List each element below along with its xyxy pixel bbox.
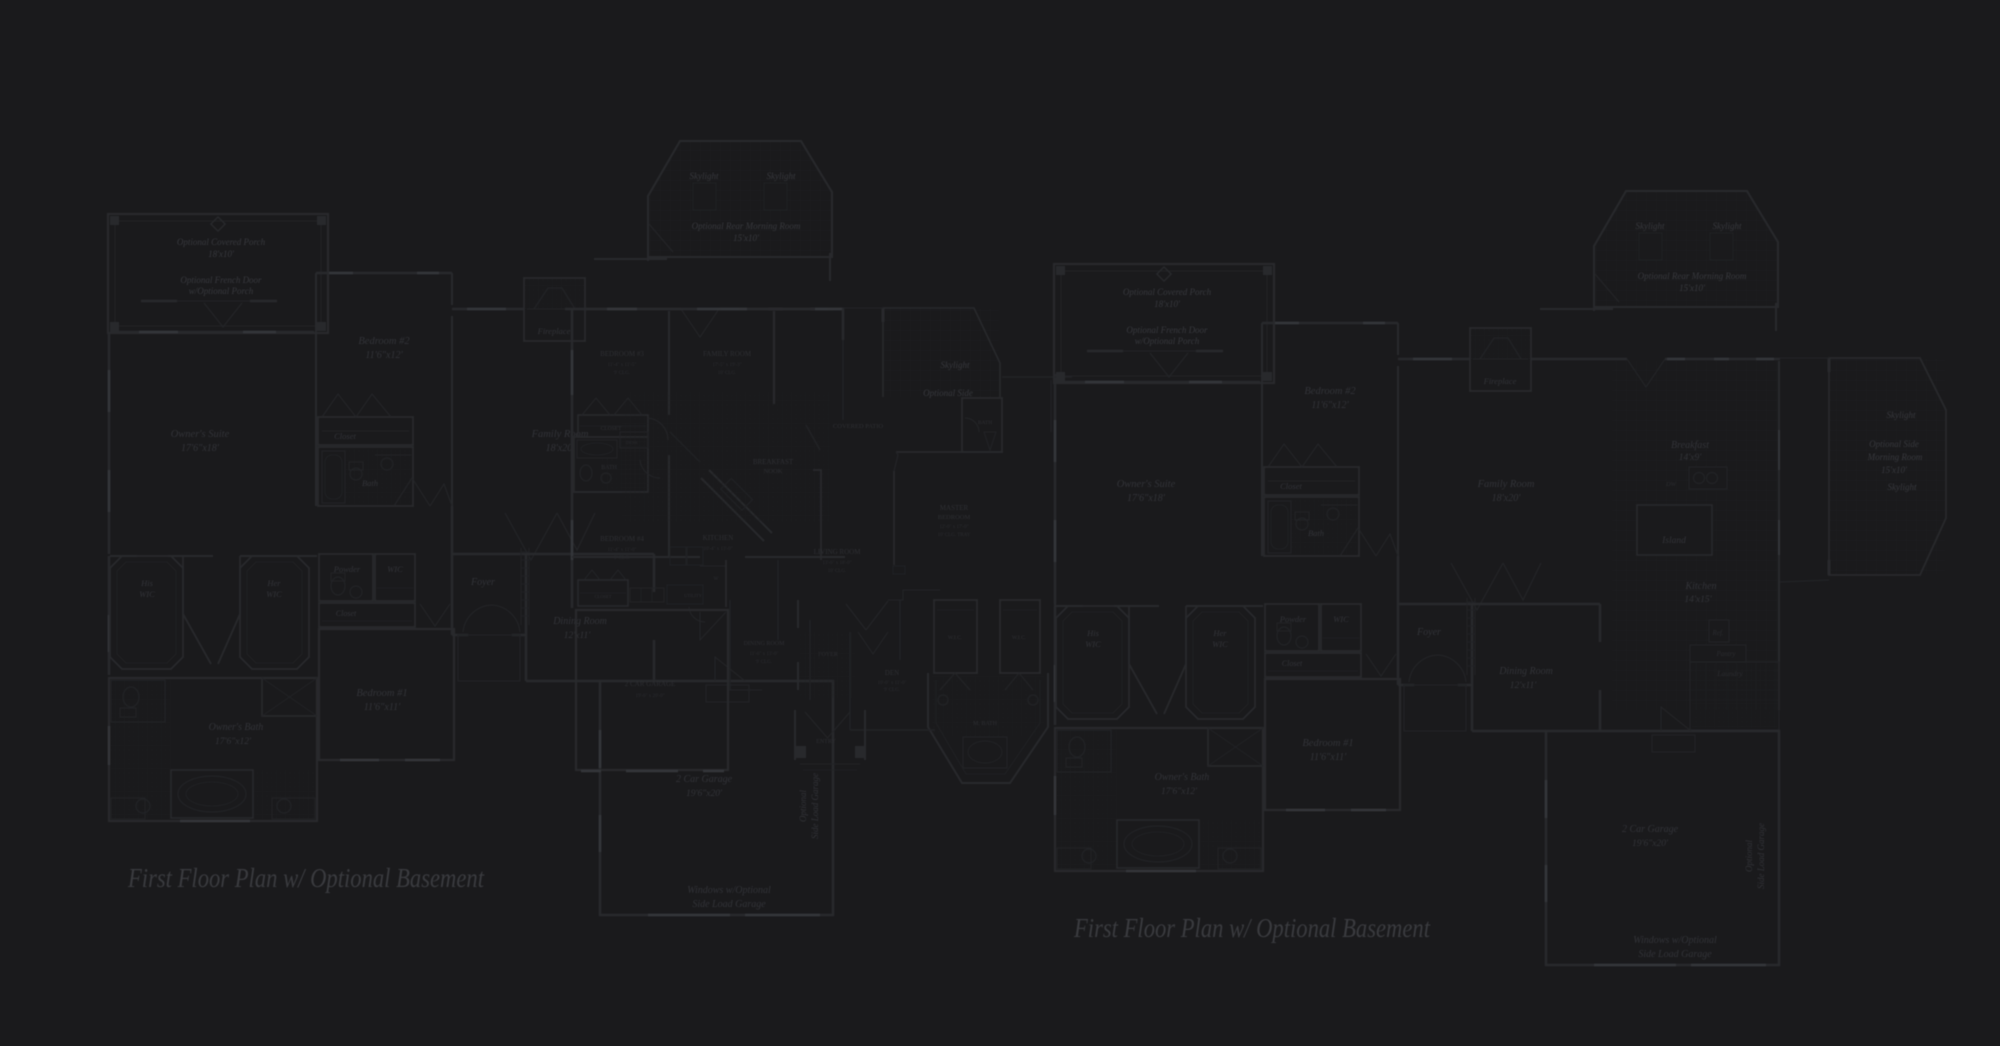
svg-text:Windows w/Optional: Windows w/Optional [1633,935,1717,946]
svg-text:10' CLG. TRAY: 10' CLG. TRAY [938,533,971,538]
svg-text:Side Load Garage: Side Load Garage [692,899,766,910]
svg-text:Optional French Door: Optional French Door [1126,325,1208,335]
svg-text:Closet: Closet [1280,481,1302,491]
svg-text:10' CLG.: 10' CLG. [828,569,846,574]
svg-text:WIC: WIC [1085,639,1101,649]
svg-text:11'6"x12': 11'6"x12' [365,350,403,361]
svg-text:BEDROOM #3: BEDROOM #3 [600,350,644,358]
svg-text:w/Optional Porch: w/Optional Porch [1135,336,1200,346]
svg-text:CLOSET: CLOSET [601,426,622,432]
svg-text:WIC: WIC [266,589,282,599]
svg-text:12'x11': 12'x11' [1510,681,1538,691]
svg-text:Skylight: Skylight [1887,410,1916,420]
svg-text:Bath: Bath [362,478,378,488]
svg-text:BEDROOM: BEDROOM [938,514,971,521]
svg-text:KITCHEN: KITCHEN [703,534,734,542]
svg-text:Her: Her [1212,628,1227,638]
svg-text:Laundry: Laundry [1716,669,1743,678]
svg-text:Owner's Bath: Owner's Bath [209,722,264,733]
svg-text:Side Load Garage: Side Load Garage [1638,949,1712,960]
svg-text:w/Optional Porch: w/Optional Porch [189,286,254,296]
svg-text:17'-5" x 19'-3": 17'-5" x 19'-3" [712,363,741,368]
svg-text:9' CLG.: 9' CLG. [884,688,900,693]
svg-text:11'-4" x 11'-0": 11'-4" x 11'-0" [608,548,637,553]
svg-text:NOOK: NOOK [764,468,783,475]
svg-text:Ref.: Ref. [1711,629,1723,637]
svg-text:Island: Island [1661,536,1686,546]
svg-text:Foyer: Foyer [470,577,495,588]
svg-text:15'x10': 15'x10' [733,233,760,243]
svg-text:Family Room: Family Room [1477,479,1535,490]
svg-text:W.I.C.: W.I.C. [948,635,963,641]
svg-text:12'x11': 12'x11' [564,631,592,641]
svg-text:Powder: Powder [1279,614,1307,624]
svg-text:W: W [714,577,719,582]
svg-text:Skylight: Skylight [941,360,970,370]
svg-text:Dining Room: Dining Room [552,616,607,627]
svg-text:11'6"x12': 11'6"x12' [1311,400,1349,411]
svg-text:19'-6" x 20'-0": 19'-6" x 20'-0" [635,694,664,699]
svg-text:9' CLG.: 9' CLG. [756,660,772,665]
svg-text:Foyer: Foyer [1416,627,1441,638]
svg-text:WIC: WIC [1333,614,1349,624]
svg-text:ENTRY: ENTRY [816,739,836,745]
svg-text:Fireplace: Fireplace [537,326,571,336]
svg-text:His: His [140,578,154,588]
svg-text:Optional: Optional [798,790,808,823]
svg-text:14'x15': 14'x15' [1684,595,1712,605]
svg-text:CLOSET: CLOSET [594,594,611,599]
svg-text:10' CLG.: 10' CLG. [718,371,736,376]
svg-text:Owner's Bath: Owner's Bath [1155,772,1210,783]
svg-text:First Floor Plan w/ Optional: First Floor Plan w/ Optional Basement [127,863,485,893]
svg-text:2 CAR GARAGE: 2 CAR GARAGE [625,680,676,688]
svg-text:2 Car Garage: 2 Car Garage [676,774,733,785]
svg-text:MASTER: MASTER [940,504,969,512]
svg-text:LIVING ROOM: LIVING ROOM [814,548,862,556]
svg-text:Fireplace: Fireplace [1483,376,1517,386]
svg-text:18'x10': 18'x10' [1154,299,1181,309]
svg-text:17'6"x12': 17'6"x12' [215,737,252,747]
svg-text:Optional Side: Optional Side [923,388,973,398]
svg-text:Breakfast: Breakfast [1671,440,1709,451]
svg-text:Closet: Closet [336,609,357,618]
svg-text:Owner's Suite: Owner's Suite [1117,479,1176,490]
svg-text:FAMILY ROOM: FAMILY ROOM [703,350,752,358]
svg-text:10'-4" x 13'-0": 10'-4" x 13'-0" [703,547,732,552]
svg-text:Pantry: Pantry [1715,650,1736,658]
svg-text:18'x10': 18'x10' [208,249,235,259]
svg-text:2 Car Garage: 2 Car Garage [1622,824,1679,835]
svg-text:15'x10': 15'x10' [1881,465,1908,475]
svg-text:DEN: DEN [885,669,899,677]
svg-text:Her: Her [266,578,281,588]
svg-text:19'6"x20': 19'6"x20' [1632,839,1669,849]
svg-text:Side Load Garage: Side Load Garage [1756,823,1766,889]
svg-text:18'x20': 18'x20' [1492,493,1522,504]
svg-text:Optional Rear Morning Room: Optional Rear Morning Room [692,221,801,231]
svg-text:14'x9': 14'x9' [1679,453,1702,463]
svg-text:W.I.C.: W.I.C. [1012,635,1027,641]
svg-text:10'-0" x 11'-0": 10'-0" x 11'-0" [877,681,906,686]
svg-text:Skylight: Skylight [1636,221,1665,231]
svg-text:DW: DW [1665,481,1677,488]
svg-text:Optional Side: Optional Side [1869,439,1919,449]
svg-text:11'6"x11': 11'6"x11' [364,702,401,713]
svg-text:Bedroom #1: Bedroom #1 [356,688,407,699]
svg-text:Skylight: Skylight [1888,482,1917,492]
svg-text:19'6"x20': 19'6"x20' [686,789,723,799]
svg-text:13'-6" x 18'-0": 13'-6" x 18'-0" [822,561,851,566]
svg-text:Family Room: Family Room [531,429,589,440]
svg-text:BATH: BATH [978,420,992,426]
svg-text:Bath: Bath [1308,528,1324,538]
svg-text:Owner's Suite: Owner's Suite [171,429,230,440]
svg-text:Bedroom #2: Bedroom #2 [1304,386,1356,397]
svg-text:DINING ROOM: DINING ROOM [744,641,785,647]
svg-text:Kitchen: Kitchen [1684,581,1716,592]
svg-text:Skylight: Skylight [767,171,796,181]
svg-text:First Floor Plan w/ Optional: First Floor Plan w/ Optional Basement [1073,913,1431,943]
svg-text:12'-0" x 17'-0": 12'-0" x 17'-0" [939,525,968,530]
svg-text:Optional Covered Porch: Optional Covered Porch [177,237,266,247]
svg-text:Side Load Garage: Side Load Garage [810,773,820,839]
svg-text:Optional French Door: Optional French Door [180,275,262,285]
svg-text:Optional: Optional [1744,840,1754,873]
svg-text:Powder: Powder [333,564,361,574]
svg-text:WIC: WIC [139,589,155,599]
svg-text:BREAKFAST: BREAKFAST [753,458,794,466]
svg-text:17'6"x18': 17'6"x18' [181,443,220,454]
svg-text:COVERED PATIO: COVERED PATIO [833,423,883,430]
svg-text:Skylight: Skylight [1713,221,1742,231]
svg-text:Windows w/Optional: Windows w/Optional [687,885,771,896]
svg-text:Optional Rear Morning Room: Optional Rear Morning Room [1638,271,1747,281]
svg-text:Bedroom #1: Bedroom #1 [1302,738,1353,749]
svg-text:M. BATH: M. BATH [973,721,998,727]
svg-text:11'6"x11': 11'6"x11' [1310,752,1347,763]
svg-text:Closet: Closet [334,431,356,441]
svg-text:Closet: Closet [1282,659,1303,668]
svg-text:15'x10': 15'x10' [1679,283,1706,293]
svg-text:11'-4" x 11'-5": 11'-4" x 11'-5" [608,363,637,368]
svg-text:BEDROOM #4: BEDROOM #4 [600,535,644,543]
svg-text:UTILITY: UTILITY [684,593,702,598]
svg-text:BATH: BATH [601,465,617,471]
svg-text:WIC: WIC [1212,639,1228,649]
svg-text:Skylight: Skylight [690,171,719,181]
svg-text:17'6"x12': 17'6"x12' [1161,787,1198,797]
svg-text:Morning Room: Morning Room [1867,452,1923,462]
svg-text:Bedroom #2: Bedroom #2 [358,336,410,347]
svg-text:17'6"x18': 17'6"x18' [1127,493,1166,504]
svg-text:Dining Room: Dining Room [1498,666,1553,677]
svg-text:11'-6" x 13'-0": 11'-6" x 13'-0" [749,652,778,657]
svg-text:Optional Covered Porch: Optional Covered Porch [1123,287,1212,297]
svg-text:9' CLG.: 9' CLG. [614,371,630,376]
svg-text:His: His [1086,628,1100,638]
svg-text:WIC: WIC [387,564,403,574]
